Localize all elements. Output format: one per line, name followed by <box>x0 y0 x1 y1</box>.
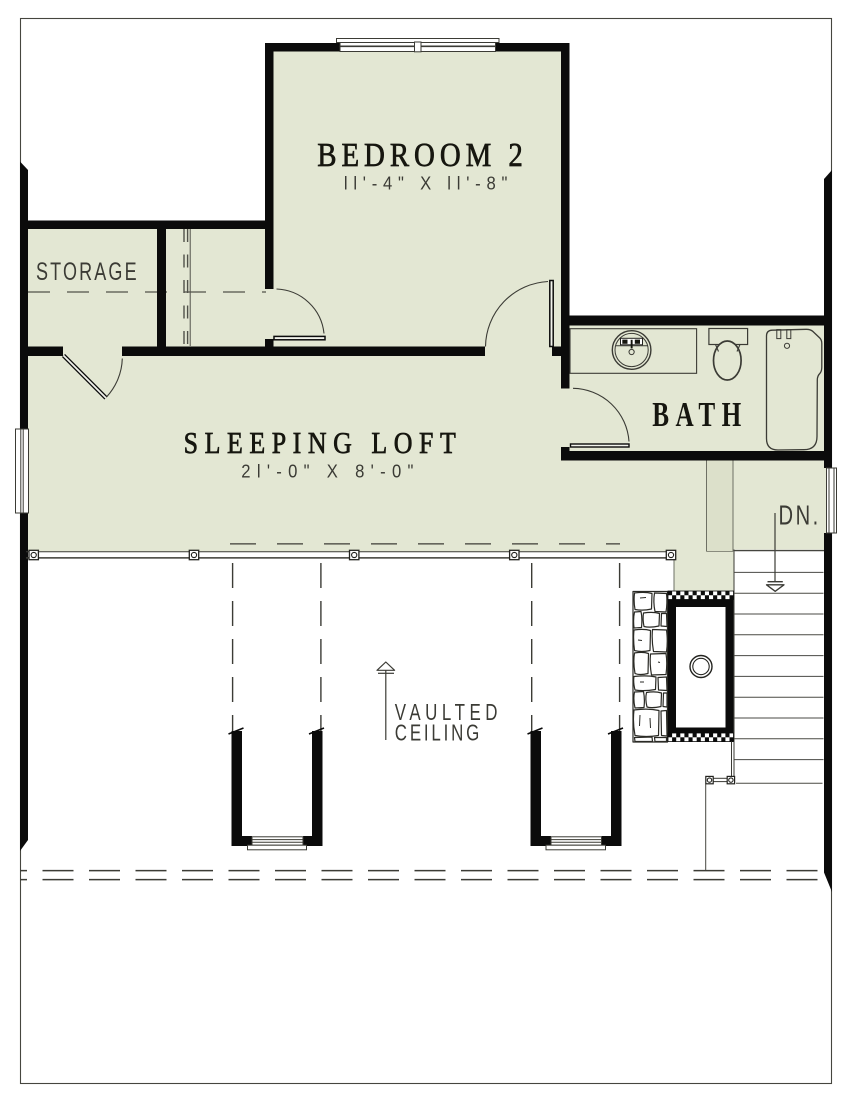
svg-text:BATH: BATH <box>652 395 747 434</box>
svg-text:DN.: DN. <box>779 500 821 531</box>
svg-text:SLEEPING LOFT: SLEEPING LOFT <box>184 427 463 460</box>
svg-text:BEDROOM 2: BEDROOM 2 <box>317 136 528 174</box>
svg-text:STORAGE: STORAGE <box>36 257 139 286</box>
svg-text:2l'-0" X 8'-0": 2l'-0" X 8'-0" <box>241 461 419 482</box>
svg-text:ll'-4" X ll'-8": ll'-4" X ll'-8" <box>344 173 513 194</box>
svg-text:CEILING: CEILING <box>395 720 482 746</box>
